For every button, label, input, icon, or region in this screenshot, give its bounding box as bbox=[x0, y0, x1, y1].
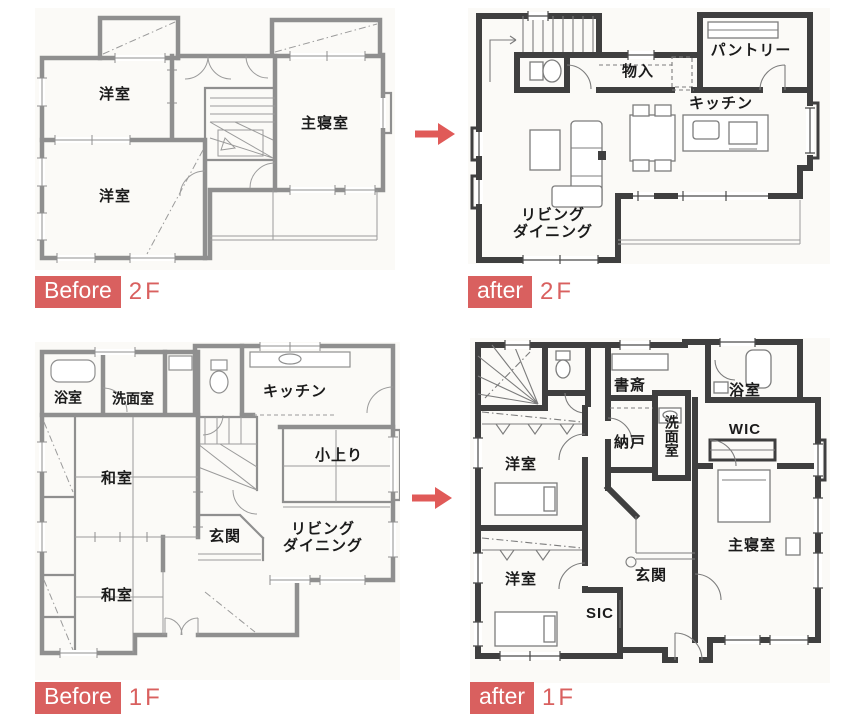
kitchen-island bbox=[683, 115, 768, 151]
pantry-room bbox=[700, 22, 810, 103]
bed bbox=[495, 483, 557, 515]
toilet-room bbox=[517, 55, 599, 90]
floorplan-after-1f-drawing bbox=[470, 338, 830, 683]
room-label-yoshitsu-top: 洋室 bbox=[99, 87, 131, 104]
room-label-yoshitsu-top: 洋室 bbox=[505, 457, 537, 474]
room-label-yoshitsu-bottom: 洋室 bbox=[505, 572, 537, 589]
room-label-kitchen: キッチン bbox=[689, 96, 753, 113]
before-badge: Before bbox=[35, 276, 121, 308]
after-badge: after bbox=[470, 682, 534, 714]
room-label-genkan: 玄関 bbox=[209, 529, 241, 546]
toilet-icon bbox=[556, 351, 570, 378]
washstand-icon bbox=[169, 356, 192, 370]
room-label-living-dining: リビング ダイニング bbox=[513, 208, 593, 241]
floorplan-before-2f-drawing bbox=[35, 8, 395, 270]
toilet-icon bbox=[210, 371, 228, 393]
room-label-washitsu-mid: 和室 bbox=[101, 471, 133, 488]
bathtub-icon bbox=[51, 360, 95, 382]
column bbox=[626, 557, 636, 567]
side-table bbox=[786, 538, 800, 555]
label-before-1f: Before 1F bbox=[35, 682, 163, 714]
stairs bbox=[205, 88, 275, 160]
before-badge: Before bbox=[35, 682, 121, 714]
tv-board bbox=[530, 130, 560, 170]
floorplan-after-1f: 書斎 浴室 納戸 洗面室 WIC 洋室 主寝室 洋室 玄関 SIC bbox=[470, 338, 830, 683]
floorplan-before-2f: 洋室 主寝室 洋室 bbox=[35, 8, 395, 270]
room-label-senmenshitsu: 洗面室 bbox=[663, 415, 678, 457]
roof-terrace bbox=[210, 190, 377, 240]
desk bbox=[612, 354, 668, 370]
floor-text: 2F bbox=[540, 278, 574, 306]
bed bbox=[495, 612, 557, 646]
stairs bbox=[478, 345, 588, 413]
room-label-koagari: 小上り bbox=[315, 448, 363, 465]
door-arcs bbox=[180, 56, 275, 196]
floorplan-after-2f: 物入 パントリー キッチン リビング ダイニング bbox=[468, 8, 830, 264]
renovation-before-after-diagram: 洋室 主寝室 洋室 bbox=[0, 0, 850, 720]
toilet-icon bbox=[530, 60, 561, 82]
dining-table bbox=[630, 105, 675, 171]
floorplan-before-1f: 浴室 洗面室 キッチン 和室 小上り 玄関 リビング ダイニング 和室 bbox=[35, 342, 400, 680]
label-after-1f: after 1F bbox=[470, 682, 576, 714]
entry-door-arcs bbox=[165, 618, 198, 635]
room-label-living-dining: リビング ダイニング bbox=[283, 522, 363, 555]
after-badge: after bbox=[468, 276, 532, 308]
room-label-kitchen: キッチン bbox=[263, 384, 327, 401]
room-label-shushinshitsu: 主寝室 bbox=[301, 116, 349, 133]
before-after-arrow-icon bbox=[413, 119, 455, 149]
room-label-yokushitsu: 浴室 bbox=[54, 390, 82, 405]
roof-terrace bbox=[618, 200, 800, 244]
room-label-pantry: パントリー bbox=[711, 43, 792, 60]
balcony bbox=[100, 18, 380, 58]
floorplan-before-1f-drawing bbox=[35, 342, 400, 680]
room-label-genkan: 玄関 bbox=[635, 568, 667, 585]
room-label-shosai: 書斎 bbox=[614, 378, 646, 395]
room-label-nando: 納戸 bbox=[614, 435, 646, 452]
bed bbox=[718, 470, 770, 522]
koagari-area bbox=[280, 427, 393, 507]
room-label-yoshitsu-bottom: 洋室 bbox=[99, 189, 131, 206]
floor-text: 1F bbox=[129, 684, 163, 712]
washitsu-area bbox=[42, 417, 198, 653]
floor-text: 1F bbox=[542, 684, 576, 712]
floor-text: 2F bbox=[129, 278, 163, 306]
label-before-2f: Before 2F bbox=[35, 276, 163, 308]
stairs bbox=[198, 417, 257, 514]
room-label-yokushitsu: 浴室 bbox=[729, 383, 761, 400]
before-after-arrow-icon bbox=[410, 483, 452, 513]
room-label-wic: WIC bbox=[729, 422, 761, 439]
label-after-2f: after 2F bbox=[468, 276, 574, 308]
room-label-senmenshitsu: 洗面室 bbox=[112, 391, 154, 406]
room-label-sic: SIC bbox=[586, 606, 614, 623]
room-label-washitsu-bottom: 和室 bbox=[101, 588, 133, 605]
room-label-shushinshitsu: 主寝室 bbox=[728, 538, 776, 555]
room-label-monoire: 物入 bbox=[622, 64, 654, 81]
